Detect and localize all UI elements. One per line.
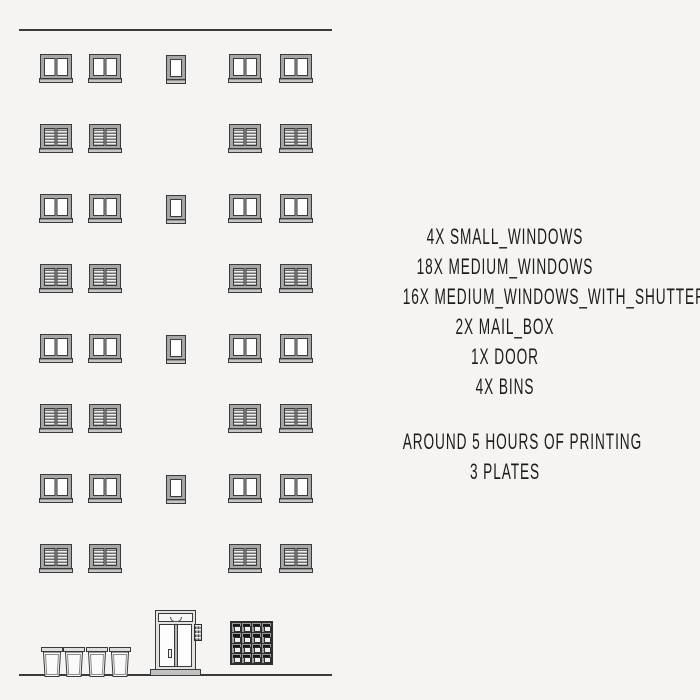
door-center-stile <box>174 625 178 666</box>
print-note-hours: AROUND 5 HOURS OF PRINTING <box>403 427 608 457</box>
trash-bin <box>41 647 63 677</box>
window-sill <box>39 78 73 83</box>
window-divider <box>55 338 58 356</box>
medium-window-with-shutters <box>281 405 311 429</box>
medium-window-with-shutters <box>230 125 260 149</box>
window-divider <box>295 128 298 146</box>
mailbox-unit <box>242 644 251 653</box>
window-sill <box>279 78 313 83</box>
medium-window-with-shutters <box>90 545 120 569</box>
mailbox-unit <box>232 633 241 642</box>
window-divider <box>295 408 298 426</box>
window-sill <box>279 148 313 153</box>
window-sill <box>166 499 186 504</box>
medium-window-with-shutters <box>281 545 311 569</box>
legend-item-mailbox: 2X MAIL_BOX <box>403 312 608 342</box>
window-divider <box>55 58 58 76</box>
mailbox-unit <box>262 644 271 653</box>
medium-window <box>41 195 71 219</box>
window-sill <box>279 358 313 363</box>
roof-line <box>19 29 332 31</box>
medium-window-with-shutters <box>281 265 311 289</box>
window-divider <box>295 478 298 496</box>
medium-window-with-shutters <box>41 265 71 289</box>
window-divider <box>104 58 107 76</box>
window-sill <box>279 428 313 433</box>
medium-window-with-shutters <box>90 265 120 289</box>
medium-window <box>41 475 71 499</box>
window-sill <box>88 358 122 363</box>
window-divider <box>104 548 107 566</box>
medium-window-with-shutters <box>41 125 71 149</box>
door-leaves <box>159 624 192 667</box>
window-sill <box>279 288 313 293</box>
door-handle <box>168 649 172 658</box>
legend-item-bins: 4X BINS <box>403 372 608 402</box>
medium-window-with-shutters <box>281 125 311 149</box>
window-divider <box>104 338 107 356</box>
entrance-door <box>155 610 196 670</box>
door-threshold <box>150 669 201 676</box>
window-sill <box>39 358 73 363</box>
window-divider <box>55 548 58 566</box>
mailbox-unit <box>242 633 251 642</box>
medium-window-with-shutters <box>90 125 120 149</box>
window-sill <box>39 498 73 503</box>
small-window <box>167 476 185 500</box>
window-sill <box>88 568 122 573</box>
window-sill <box>279 218 313 223</box>
window-divider <box>244 338 247 356</box>
print-note-plates: 3 PLATES <box>403 457 608 487</box>
window-sill <box>88 498 122 503</box>
medium-window-with-shutters <box>41 405 71 429</box>
window-divider <box>104 198 107 216</box>
mailbox-unit <box>252 654 261 663</box>
medium-window <box>281 335 311 359</box>
door-transom <box>158 613 193 622</box>
medium-window <box>90 335 120 359</box>
mailbox-unit <box>232 654 241 663</box>
window-sill <box>39 148 73 153</box>
medium-window-with-shutters <box>230 265 260 289</box>
mailbox-block <box>230 621 273 665</box>
medium-window <box>230 475 260 499</box>
medium-window-with-shutters <box>90 405 120 429</box>
window-divider <box>295 548 298 566</box>
window-sill <box>166 79 186 84</box>
window-divider <box>55 128 58 146</box>
medium-window-with-shutters <box>41 545 71 569</box>
mailbox-unit <box>232 644 241 653</box>
window-divider <box>55 408 58 426</box>
mailbox-unit <box>262 623 271 632</box>
window-divider <box>295 58 298 76</box>
window-sill <box>88 288 122 293</box>
window-sill <box>279 568 313 573</box>
window-divider <box>295 198 298 216</box>
mailbox-unit <box>262 654 271 663</box>
mailbox-unit <box>252 623 261 632</box>
window-divider <box>55 478 58 496</box>
window-sill <box>166 219 186 224</box>
window-sill <box>228 288 262 293</box>
window-sill <box>228 148 262 153</box>
parts-legend: 4X SMALL_WINDOWS 18X MEDIUM_WINDOWS 16X … <box>340 222 670 487</box>
medium-window <box>281 475 311 499</box>
window-sill <box>88 148 122 153</box>
small-window <box>167 56 185 80</box>
window-divider <box>104 128 107 146</box>
window-divider <box>295 268 298 286</box>
mailbox-unit <box>252 644 261 653</box>
medium-window-with-shutters <box>230 545 260 569</box>
window-divider <box>244 478 247 496</box>
small-window <box>167 336 185 360</box>
window-divider <box>244 408 247 426</box>
legend-item-medium-windows: 18X MEDIUM_WINDOWS <box>403 252 608 282</box>
medium-window <box>281 55 311 79</box>
trash-bin <box>63 647 85 677</box>
window-sill <box>88 428 122 433</box>
trash-bin <box>86 647 108 677</box>
window-divider <box>104 408 107 426</box>
small-window <box>167 196 185 220</box>
window-divider <box>55 268 58 286</box>
medium-window <box>230 195 260 219</box>
door-transom-arc <box>170 617 182 622</box>
legend-item-shutter-windows: 16X MEDIUM_WINDOWS_WITH_SHUTTERS <box>403 282 608 312</box>
medium-window <box>230 335 260 359</box>
window-sill <box>228 218 262 223</box>
window-divider <box>244 128 247 146</box>
medium-window <box>41 335 71 359</box>
window-sill <box>39 288 73 293</box>
window-sill <box>39 428 73 433</box>
medium-window <box>90 55 120 79</box>
mailbox-unit <box>242 654 251 663</box>
window-divider <box>104 268 107 286</box>
window-sill <box>228 498 262 503</box>
legend-item-door: 1X DOOR <box>403 342 608 372</box>
medium-window <box>90 475 120 499</box>
medium-window <box>281 195 311 219</box>
intercom-panel <box>194 624 202 641</box>
window-divider <box>244 198 247 216</box>
window-sill <box>166 359 186 364</box>
window-sill <box>228 78 262 83</box>
trash-bin <box>109 647 131 677</box>
window-sill <box>88 218 122 223</box>
mailbox-unit <box>232 623 241 632</box>
window-divider <box>244 548 247 566</box>
window-sill <box>228 568 262 573</box>
window-sill <box>39 218 73 223</box>
medium-window-with-shutters <box>230 405 260 429</box>
mailbox-unit <box>242 623 251 632</box>
window-sill <box>228 358 262 363</box>
window-divider <box>244 268 247 286</box>
legend-item-small-windows: 4X SMALL_WINDOWS <box>403 222 608 252</box>
window-divider <box>55 198 58 216</box>
window-sill <box>39 568 73 573</box>
blueprint-canvas: 4X SMALL_WINDOWS 18X MEDIUM_WINDOWS 16X … <box>0 0 700 700</box>
medium-window <box>41 55 71 79</box>
mailbox-unit <box>262 633 271 642</box>
window-sill <box>228 428 262 433</box>
print-notes: AROUND 5 HOURS OF PRINTING 3 PLATES <box>340 427 670 487</box>
mailbox-unit <box>252 633 261 642</box>
window-sill <box>88 78 122 83</box>
window-divider <box>295 338 298 356</box>
window-sill <box>279 498 313 503</box>
medium-window <box>90 195 120 219</box>
medium-window <box>230 55 260 79</box>
window-divider <box>104 478 107 496</box>
window-divider <box>244 58 247 76</box>
